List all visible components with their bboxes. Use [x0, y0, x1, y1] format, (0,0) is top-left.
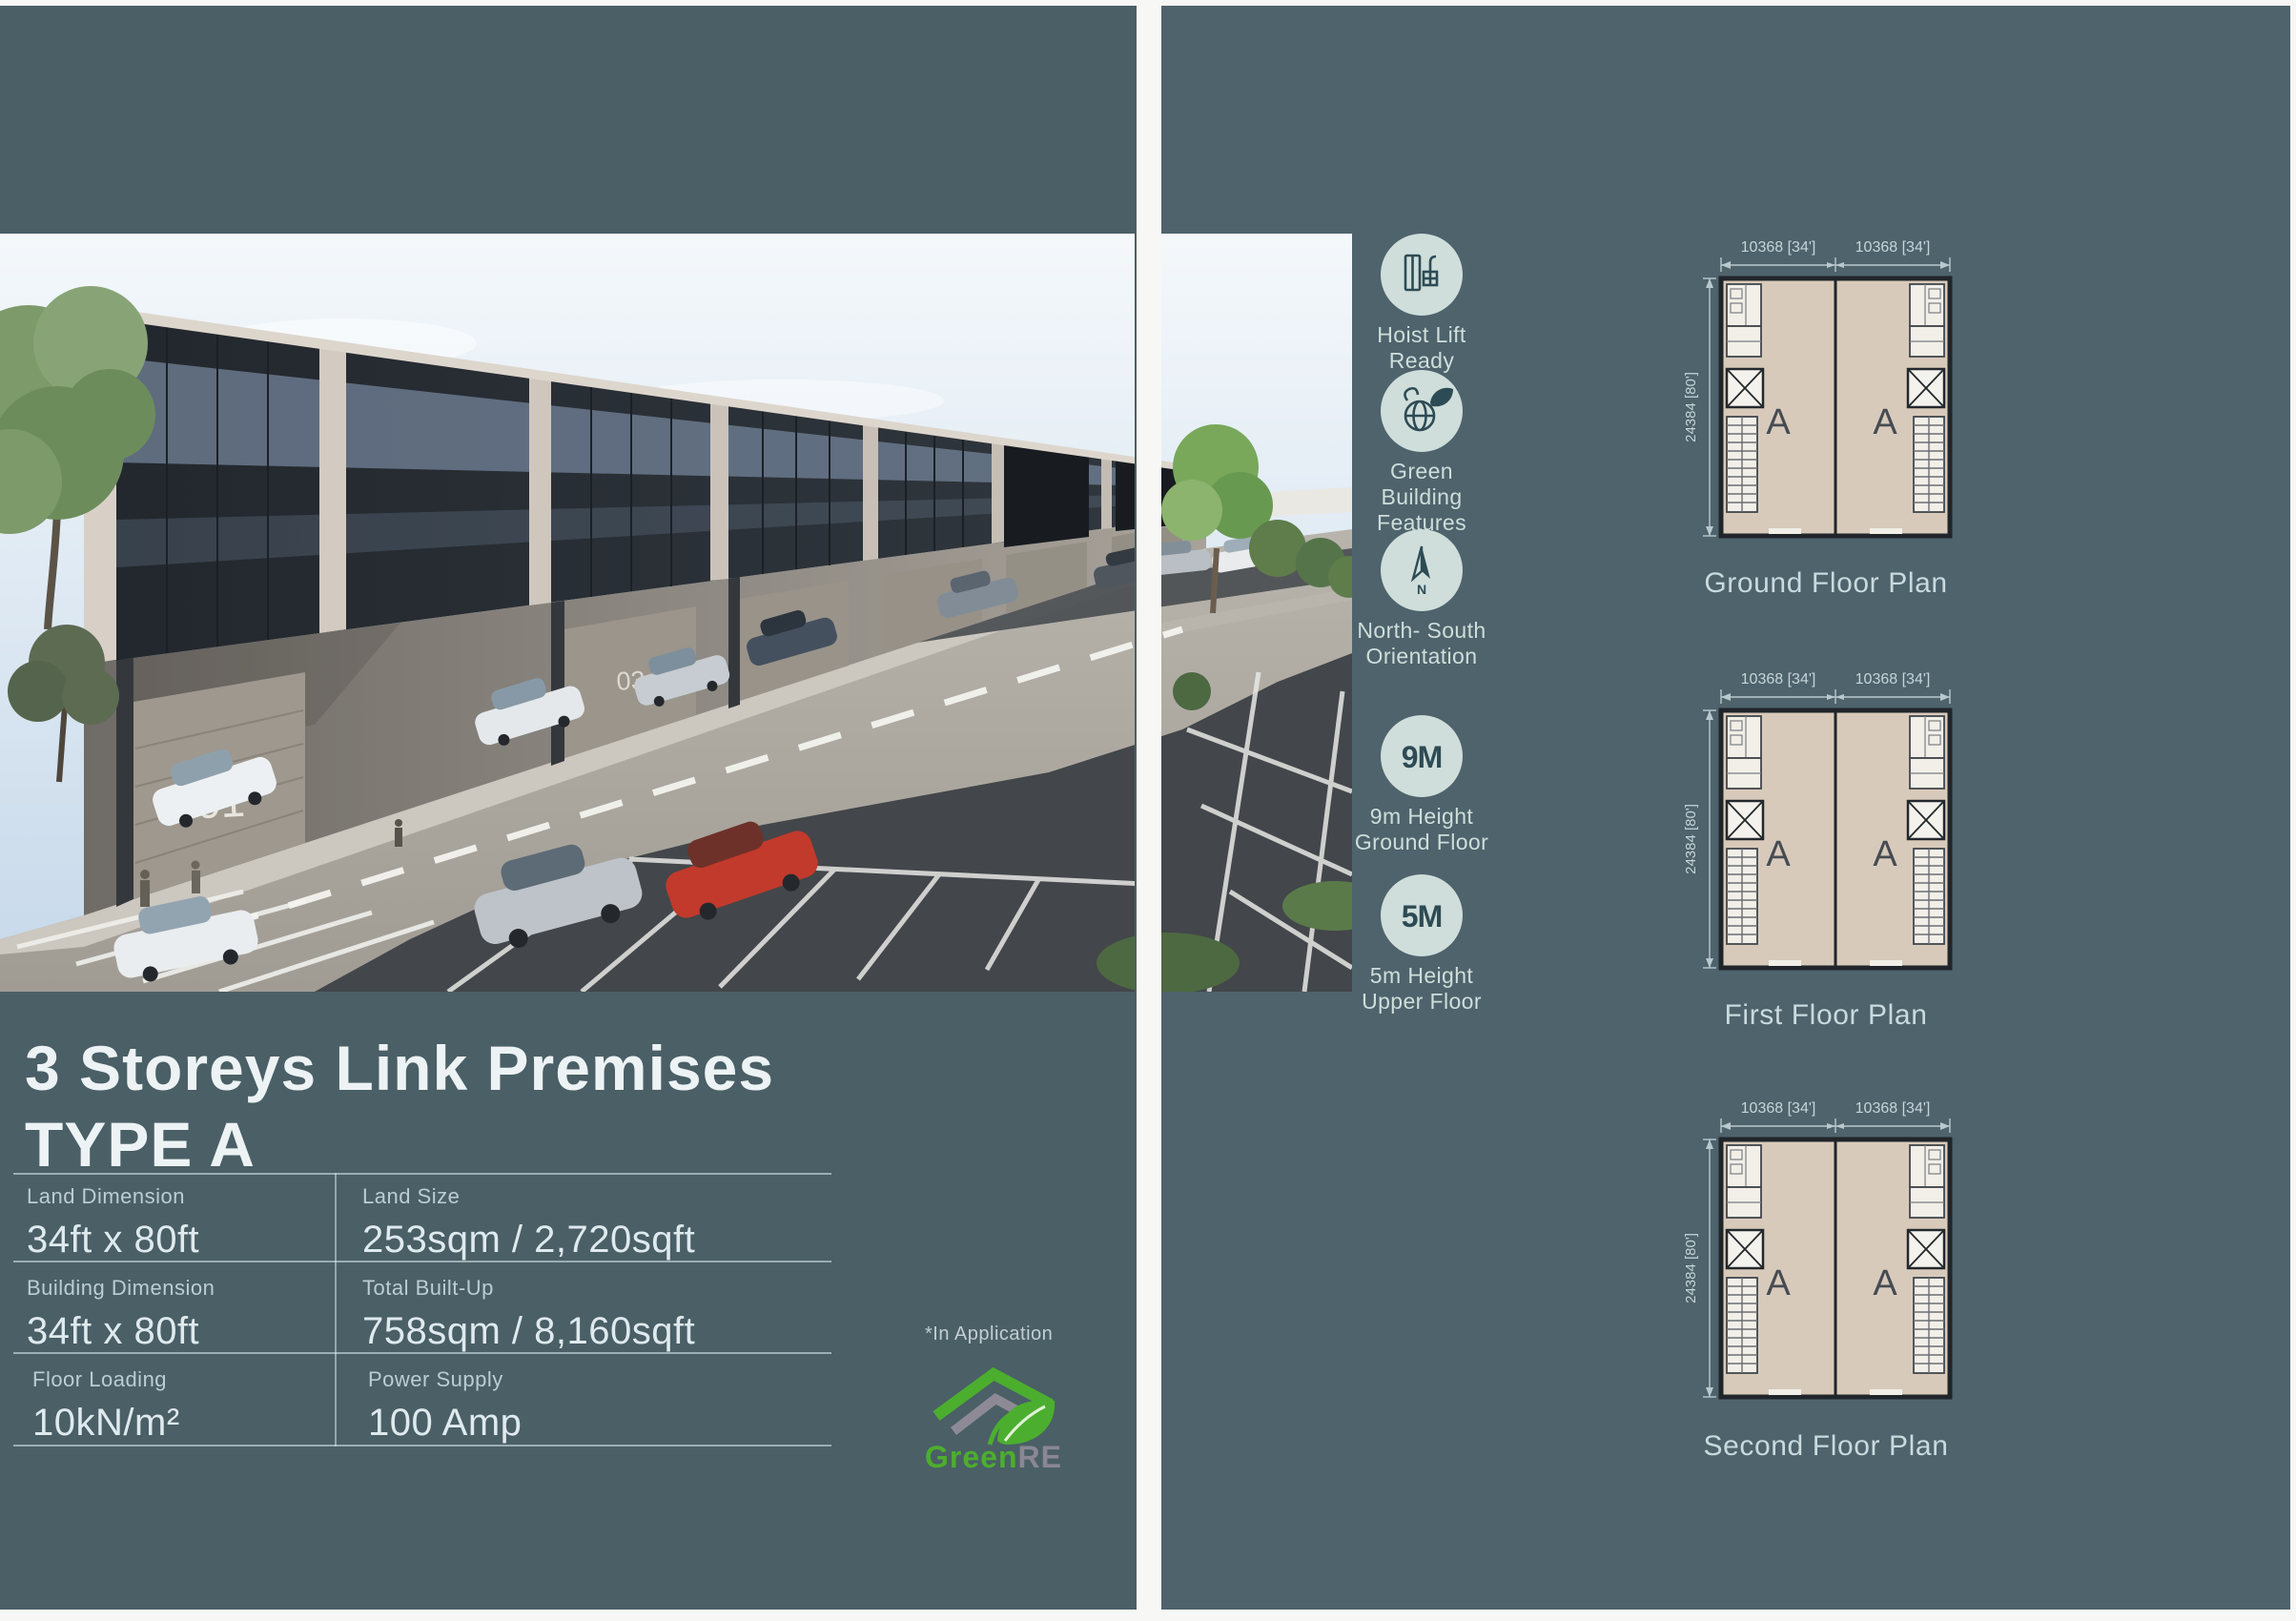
spec-label: Land Size [362, 1184, 695, 1209]
table-rule-vertical [335, 1173, 337, 1447]
feature-label: 5m Height Upper Floor [1362, 963, 1482, 1015]
plan-dim-right: 10368 [34'] [1855, 239, 1931, 256]
table-rule [13, 1445, 831, 1447]
spec-label: Floor Loading [32, 1367, 180, 1392]
table-rule [13, 1173, 831, 1175]
feature-label: 9m Height Ground Floor [1355, 804, 1488, 855]
page-divider [1137, 0, 1161, 1621]
spec-value: 34ft x 80ft [27, 1310, 215, 1353]
unit-letter: A [1766, 402, 1791, 442]
spec-label: Land Dimension [27, 1184, 199, 1209]
plan-dim-side: 24384 [80'] [1683, 1233, 1699, 1303]
spec-label: Building Dimension [27, 1276, 215, 1301]
feature-label: Hoist Lift Ready [1377, 322, 1466, 374]
spec-value: 10kN/m² [32, 1402, 180, 1445]
unit-letter: A [1766, 834, 1791, 874]
height-5m-icon: 5M [1381, 874, 1463, 956]
page-title: 3 Storeys Link Premises TYPE A [25, 1030, 774, 1182]
unit-letter: A [1766, 1263, 1791, 1303]
plan-dim-left: 10368 [34'] [1741, 671, 1816, 687]
ground-floor-plan: 10368 [34'] 10368 [34'] 24384 [80'] [1683, 236, 1969, 550]
badge-9m: 9M [1402, 740, 1442, 774]
logo-word-green: Green [925, 1440, 1017, 1471]
badge-5m: 5M [1402, 899, 1442, 934]
spec-floor-loading: Floor Loading 10kN/m² [32, 1367, 180, 1445]
second-floor-plan: 10368 [34'] 10368 [34'] 24384 [80'] A A [1683, 1097, 1969, 1411]
spec-label: Power Supply [368, 1367, 522, 1392]
height-9m-icon: 9M [1381, 715, 1463, 797]
spec-power-supply: Power Supply 100 Amp [368, 1367, 522, 1445]
feature-label: North- South Orientation [1357, 618, 1486, 669]
north-south-icon: N [1381, 529, 1463, 611]
building-render-photo: 01 03 [0, 234, 1135, 992]
spec-label: Total Built-Up [362, 1276, 695, 1301]
page-title-line2: TYPE A [25, 1106, 774, 1182]
svg-text:GreenRE: GreenRE [925, 1440, 1062, 1471]
spec-land-size: Land Size 253sqm / 2,720sqft [362, 1184, 695, 1262]
unit-letter: A [1873, 1263, 1897, 1303]
first-floor-plan: 10368 [34'] 10368 [34'] 24384 [80'] A A [1683, 667, 1969, 982]
spec-value: 34ft x 80ft [27, 1219, 199, 1262]
hoist-lift-icon [1381, 234, 1463, 316]
spec-total-built-up: Total Built-Up 758sqm / 8,160sqft [362, 1276, 695, 1353]
feature-north-south: N North- South Orientation [1333, 529, 1510, 669]
plan-dim-left: 10368 [34'] [1741, 1100, 1816, 1117]
logo-word-re: RE [1017, 1440, 1061, 1471]
plan-dim-side: 24384 [80'] [1683, 804, 1699, 874]
plan-dim-side: 24384 [80'] [1683, 372, 1699, 442]
spec-value: 758sqm / 8,160sqft [362, 1310, 695, 1353]
spec-land-dimension: Land Dimension 34ft x 80ft [27, 1184, 199, 1262]
feature-9m-height: 9M 9m Height Ground Floor [1333, 715, 1510, 855]
spec-building-dimension: Building Dimension 34ft x 80ft [27, 1276, 215, 1353]
cert-note: *In Application [925, 1323, 1093, 1345]
greenre-logo: GreenRE [921, 1355, 1083, 1471]
second-floor-plan-label: Second Floor Plan [1683, 1430, 1969, 1463]
page-border-right [2290, 0, 2296, 1621]
feature-5m-height: 5M 5m Height Upper Floor [1333, 874, 1510, 1015]
page-title-line1: 3 Storeys Link Premises [25, 1030, 774, 1106]
feature-label: Green Building Features [1377, 459, 1466, 536]
unit-letter: A [1873, 402, 1897, 442]
first-floor-plan-label: First Floor Plan [1683, 999, 1969, 1032]
compass-n: N [1417, 582, 1426, 597]
plan-dim-left: 10368 [34'] [1741, 239, 1816, 256]
feature-hoist-lift: Hoist Lift Ready [1333, 234, 1510, 374]
photo-scene: 01 03 [0, 234, 1135, 992]
brochure-canvas: 01 03 [0, 0, 2296, 1621]
plan-dim-right: 10368 [34'] [1855, 671, 1931, 687]
green-certification: *In Application GreenRE [921, 1323, 1093, 1476]
feature-green-building: Green Building Features [1333, 370, 1510, 536]
plan-dim-right: 10368 [34'] [1855, 1100, 1931, 1117]
spec-value: 253sqm / 2,720sqft [362, 1219, 695, 1262]
spec-table: Land Dimension 34ft x 80ft Land Size 253… [13, 1173, 831, 1447]
spec-value: 100 Amp [368, 1402, 522, 1445]
green-building-icon [1381, 370, 1463, 452]
ground-floor-plan-label: Ground Floor Plan [1683, 567, 1969, 600]
building-render-photo-right [1161, 234, 1352, 992]
unit-letter: A [1873, 834, 1897, 874]
